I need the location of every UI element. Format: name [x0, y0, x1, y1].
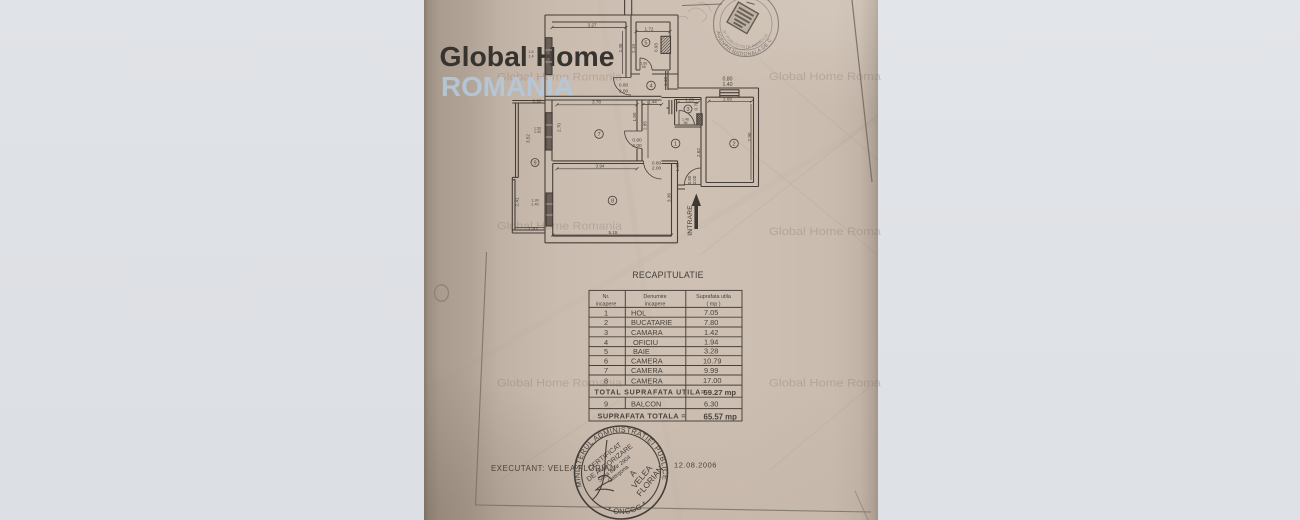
svg-text:3.27: 3.27 [588, 22, 597, 27]
svg-text:Global Home Roma: Global Home Roma [769, 226, 881, 238]
svg-text:2.00: 2.00 [652, 166, 662, 172]
svg-text:2.70: 2.70 [557, 123, 562, 132]
svg-text:10.79: 10.79 [703, 357, 722, 366]
svg-text:8: 8 [604, 376, 608, 385]
svg-text:1: 1 [674, 142, 677, 148]
svg-text:3.78: 3.78 [592, 100, 601, 105]
svg-text:1.72: 1.72 [645, 26, 654, 31]
svg-text:0.78: 0.78 [694, 101, 699, 110]
svg-text:2.00: 2.00 [619, 89, 629, 95]
svg-text:2.41: 2.41 [515, 197, 520, 206]
svg-text:5.15: 5.15 [609, 230, 618, 235]
svg-text:2: 2 [732, 142, 735, 148]
svg-text:0.90: 0.90 [533, 98, 542, 103]
svg-text:2.90: 2.90 [747, 132, 752, 141]
svg-text:1.30: 1.30 [528, 226, 537, 231]
svg-text:9.99: 9.99 [704, 366, 718, 375]
svg-text:3.94: 3.94 [596, 164, 605, 169]
svg-text:1: 1 [604, 308, 608, 317]
svg-text:INTRARE: INTRARE [687, 205, 694, 236]
svg-text:HOL: HOL [631, 308, 646, 317]
svg-text:2.00: 2.00 [692, 175, 697, 184]
svg-text:6.30: 6.30 [704, 399, 718, 408]
svg-text:2.69: 2.69 [723, 96, 732, 101]
svg-text:TOTAL SUPRAFATA UTILA=: TOTAL SUPRAFATA UTILA= [595, 389, 706, 397]
svg-text:RECAPITULATIE: RECAPITULATIE [632, 270, 704, 280]
svg-text:17.00: 17.00 [703, 376, 722, 385]
svg-text:OFICIU: OFICIU [633, 338, 658, 347]
svg-text:CAMERA: CAMERA [631, 366, 663, 375]
svg-text:1.25: 1.25 [675, 162, 680, 171]
svg-text:7: 7 [597, 132, 600, 138]
svg-text:BAIE: BAIE [633, 347, 650, 356]
svg-text:2.45: 2.45 [618, 43, 623, 52]
svg-text:0.80: 0.80 [619, 83, 629, 89]
svg-text:8: 8 [611, 199, 614, 205]
svg-text:1.40: 1.40 [722, 82, 732, 88]
svg-text:3.36: 3.36 [666, 193, 671, 202]
svg-text:3.28: 3.28 [704, 347, 718, 356]
svg-text:1.40: 1.40 [531, 203, 538, 207]
svg-text:7.05: 7.05 [704, 308, 718, 317]
svg-text:0.80: 0.80 [652, 160, 662, 166]
svg-text:66: 66 [642, 65, 646, 69]
svg-text:CAMERA: CAMERA [631, 357, 663, 366]
svg-text:ROMANIA: ROMANIA [441, 71, 574, 102]
svg-text:Denumire: Denumire [643, 294, 666, 300]
svg-text:1.13: 1.13 [663, 77, 668, 86]
svg-text:9: 9 [604, 400, 608, 409]
svg-text:1.50: 1.50 [632, 112, 637, 121]
svg-text:CAMARA: CAMARA [631, 328, 663, 337]
svg-text:4: 4 [649, 84, 652, 90]
svg-text:12.08.2006: 12.08.2006 [674, 461, 717, 470]
svg-text:2: 2 [604, 318, 608, 327]
svg-text:2.19: 2.19 [631, 44, 636, 53]
svg-text:7: 7 [604, 366, 608, 375]
svg-text:2.85: 2.85 [643, 121, 648, 130]
svg-text:1.4: 1.4 [528, 55, 533, 59]
svg-text:Global Home Roma: Global Home Roma [769, 378, 881, 390]
svg-text:4: 4 [604, 338, 608, 347]
svg-text:96: 96 [684, 121, 688, 125]
svg-text:9: 9 [533, 161, 536, 167]
svg-text:SI PUBLICITATE IMOBILIARA BUC: SI PUBLICITATE IMOBILIARA BUC [0, 0, 769, 49]
svg-text:Nr.: Nr. [603, 294, 610, 300]
svg-text:Global Home Romania: Global Home Romania [497, 221, 622, 233]
svg-text:3: 3 [604, 328, 608, 337]
svg-text:3: 3 [686, 107, 689, 113]
svg-text:BUCATARIE: BUCATARIE [631, 318, 672, 327]
svg-text:SUPRAFATA TOTALA =: SUPRAFATA TOTALA = [598, 412, 687, 421]
svg-text:Global Home Roma: Global Home Roma [769, 71, 881, 83]
svg-text:6: 6 [604, 357, 608, 366]
svg-text:Global Home: Global Home [440, 41, 615, 72]
svg-text:3.52: 3.52 [525, 134, 530, 143]
svg-text:( mp ): ( mp ) [706, 302, 720, 308]
svg-text:BALCON: BALCON [631, 400, 661, 409]
svg-text:5: 5 [644, 41, 647, 47]
svg-text:1.94: 1.94 [704, 338, 718, 347]
svg-text:incapere: incapere [596, 302, 617, 308]
svg-text:1.40: 1.40 [534, 130, 541, 134]
svg-text:1.42: 1.42 [704, 328, 718, 337]
svg-text:1.44: 1.44 [648, 99, 657, 104]
svg-text:5: 5 [604, 347, 608, 356]
svg-text:CAMERA: CAMERA [631, 376, 663, 385]
svg-text:0.93: 0.93 [653, 43, 658, 52]
svg-text:incapere: incapere [645, 302, 666, 308]
svg-text:2.00: 2.00 [632, 143, 642, 149]
svg-text:7.80: 7.80 [704, 318, 718, 327]
svg-text:Suprafata utila: Suprafata utila [696, 294, 731, 300]
svg-text:1.6: 1.6 [528, 50, 533, 54]
svg-text:65.57 mp: 65.57 mp [704, 413, 738, 422]
svg-text:2.62: 2.62 [696, 148, 701, 157]
svg-text:59.27 mp: 59.27 mp [704, 388, 737, 397]
svg-text:0.80: 0.80 [632, 138, 642, 144]
